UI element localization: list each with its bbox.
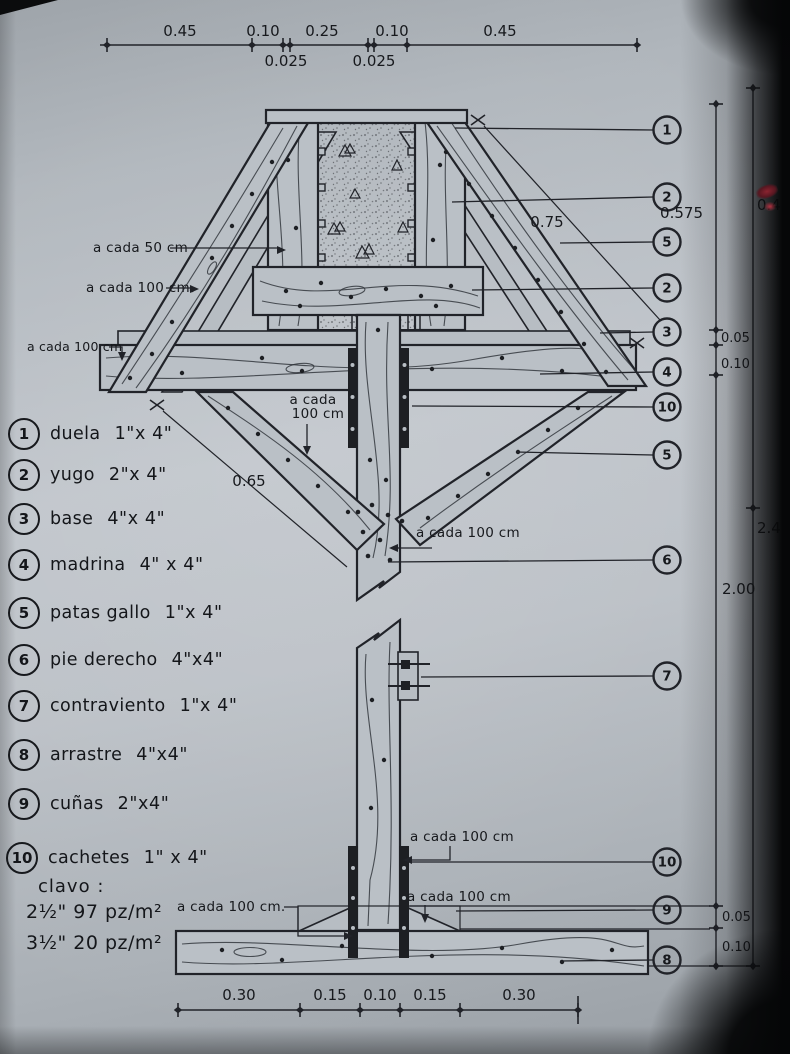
dim-bottom-030-left: 0.30 <box>222 986 255 1004</box>
top-plate <box>266 110 467 123</box>
dim-brace-075: 0.75 <box>530 213 563 231</box>
label-a-cada-100cm-bottom1: a cada 100 cm <box>410 829 514 845</box>
dim-right-005-bottom: 0.05 <box>722 910 751 925</box>
label-a-cada-100cm-clavo: a cada 100 cm. <box>177 899 286 915</box>
legend-num-8: 8 <box>8 739 40 771</box>
legend-name-madrina: madrina <box>50 555 126 575</box>
legend-num-9: 9 <box>8 788 40 820</box>
legend-size-cachetes: 1" x 4" <box>144 848 208 868</box>
legend-size-yugo: 2"x 4" <box>109 465 167 485</box>
dim-top-010-right: 0.10 <box>375 22 408 40</box>
legend-item-pie-derecho: 6 pie derecho 4"x4" <box>8 644 223 676</box>
dim-bottom-010: 0.10 <box>363 986 396 1004</box>
legend-item-contraviento: 7 contraviento 1"x 4" <box>8 690 238 722</box>
bottom-dimension-line: 0.30 0.15 0.10 0.15 0.30 <box>174 986 582 1024</box>
dim-outer-240: 2.40 <box>757 519 790 537</box>
clavo-title: clavo : <box>38 876 104 897</box>
dim-top-025: 0.25 <box>305 22 338 40</box>
clavo-spec-2: 3½" 20 pz/m² <box>26 932 162 954</box>
legend-name-duela: duela <box>50 424 101 444</box>
label-a-cada-100cm-mid: a cada 100 cm <box>416 525 520 541</box>
clavo-spec-1: 2½" 97 pz/m² <box>26 901 162 923</box>
dim-right-005-top: 0.05 <box>721 331 750 346</box>
dim-brace-065: 0.65 <box>232 472 265 490</box>
legend-name-cachetes: cachetes <box>48 848 130 868</box>
legend-num-10: 10 <box>6 842 38 874</box>
legend-num-5: 5 <box>8 597 40 629</box>
legend-item-yugo: 2 yugo 2"x 4" <box>8 459 167 491</box>
dim-top-0025-left: 0.025 <box>265 52 308 70</box>
legend-size-arrastre: 4"x4" <box>136 745 188 765</box>
callout-3: 3 <box>662 325 671 341</box>
dim-bottom-015-right: 0.15 <box>413 986 446 1004</box>
callout-10a: 10 <box>658 400 677 416</box>
legend-size-madrina: 4" x 4" <box>140 555 204 575</box>
dim-right-200: 2.00 <box>722 580 755 598</box>
callout-1: 1 <box>662 123 671 139</box>
callout-9: 9 <box>662 903 671 919</box>
legend-size-patas-gallo: 1"x 4" <box>165 603 223 623</box>
legend-num-2: 2 <box>8 459 40 491</box>
legend-name-base: base <box>50 509 93 529</box>
arrastre-plank <box>176 931 648 974</box>
legend-size-contraviento: 1"x 4" <box>180 696 238 716</box>
callout-2b: 2 <box>662 281 671 297</box>
callout-10b: 10 <box>658 855 677 871</box>
label-a-cada-center-2: 100 cm <box>292 406 344 422</box>
dim-top-045-left: 0.45 <box>163 22 196 40</box>
callout-5a: 5 <box>662 235 671 251</box>
dim-top-010-left: 0.10 <box>246 22 279 40</box>
dim-outer-040: 0.40 <box>757 196 790 214</box>
legend-size-pie-derecho: 4"x4" <box>172 650 224 670</box>
legend-name-yugo: yugo <box>50 465 95 485</box>
legend-num-1: 1 <box>8 418 40 450</box>
legend-item-patas-gallo: 5 patas gallo 1"x 4" <box>8 597 223 629</box>
legend-size-cunas: 2"x4" <box>118 794 170 814</box>
legend-item-arrastre: 8 arrastre 4"x4" <box>8 739 188 771</box>
legend-name-pie-derecho: pie derecho <box>50 650 158 670</box>
label-a-cada-100cm-left2: a cada 100 cm <box>27 339 122 354</box>
dim-top-0025-right: 0.025 <box>353 52 396 70</box>
legend-name-cunas: cuñas <box>50 794 104 814</box>
legend-size-duela: 1"x 4" <box>115 424 173 444</box>
callout-7: 7 <box>662 669 671 685</box>
pie-derecho-post <box>357 315 400 930</box>
callout-circles: 1 2 5 2 3 4 10 5 6 7 10 9 8 <box>654 117 681 974</box>
callout-4: 4 <box>662 365 671 381</box>
callout-6: 6 <box>662 553 671 569</box>
lower-diagonal-right <box>396 392 624 545</box>
legend-size-base: 4"x 4" <box>107 509 165 529</box>
dim-bottom-015-left: 0.15 <box>313 986 346 1004</box>
dim-right-010-top: 0.10 <box>721 357 750 372</box>
label-a-cada-100cm-bottom2: a cada 100 cm <box>407 889 511 905</box>
legend-name-contraviento: contraviento <box>50 696 166 716</box>
dim-right-0575: 0.575 <box>660 204 703 222</box>
scanned-formwork-detail-page: 0.45 0.10 0.25 0.10 0.45 0.025 0.025 <box>0 0 790 1054</box>
legend-name-patas-gallo: patas gallo <box>50 603 151 623</box>
legend-item-duela: 1 duela 1"x 4" <box>8 418 172 450</box>
dim-top-045-right: 0.45 <box>483 22 516 40</box>
legend-name-arrastre: arrastre <box>50 745 122 765</box>
legend-item-base: 3 base 4"x 4" <box>8 503 165 535</box>
top-dimension-line: 0.45 0.10 0.25 0.10 0.45 0.025 0.025 <box>100 22 641 70</box>
legend-num-3: 3 <box>8 503 40 535</box>
legend-num-4: 4 <box>8 549 40 581</box>
dim-right-010-bottom: 0.10 <box>722 940 751 955</box>
legend-num-6: 6 <box>8 644 40 676</box>
callout-5b: 5 <box>662 448 671 464</box>
legend-item-cachetes: 10 cachetes 1" x 4" <box>6 842 208 874</box>
legend-item-madrina: 4 madrina 4" x 4" <box>8 549 204 581</box>
legend-num-7: 7 <box>8 690 40 722</box>
legend-item-cunas: 9 cuñas 2"x4" <box>8 788 169 820</box>
dim-bottom-030-right: 0.30 <box>502 986 535 1004</box>
